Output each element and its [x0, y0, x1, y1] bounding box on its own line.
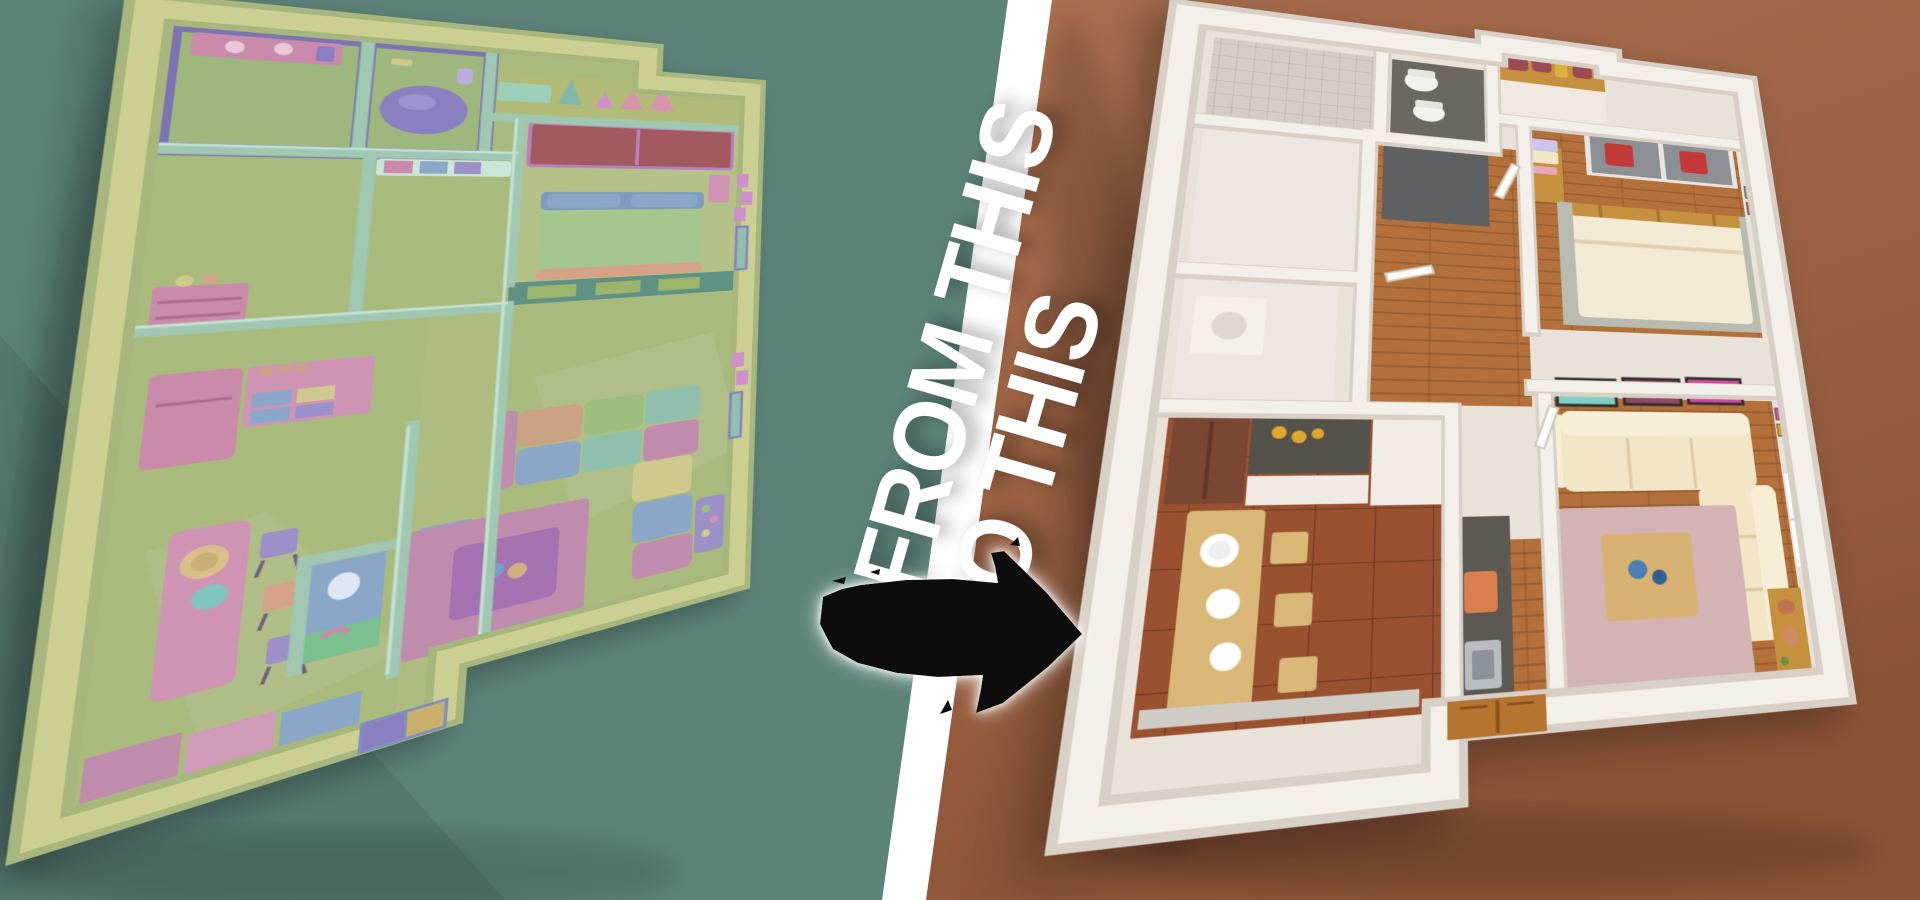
brush-arrow-icon	[820, 551, 1082, 713]
arrow-layer	[0, 0, 1920, 900]
comparison-thumbnail: FROM THIS TO THIS	[0, 0, 1920, 900]
